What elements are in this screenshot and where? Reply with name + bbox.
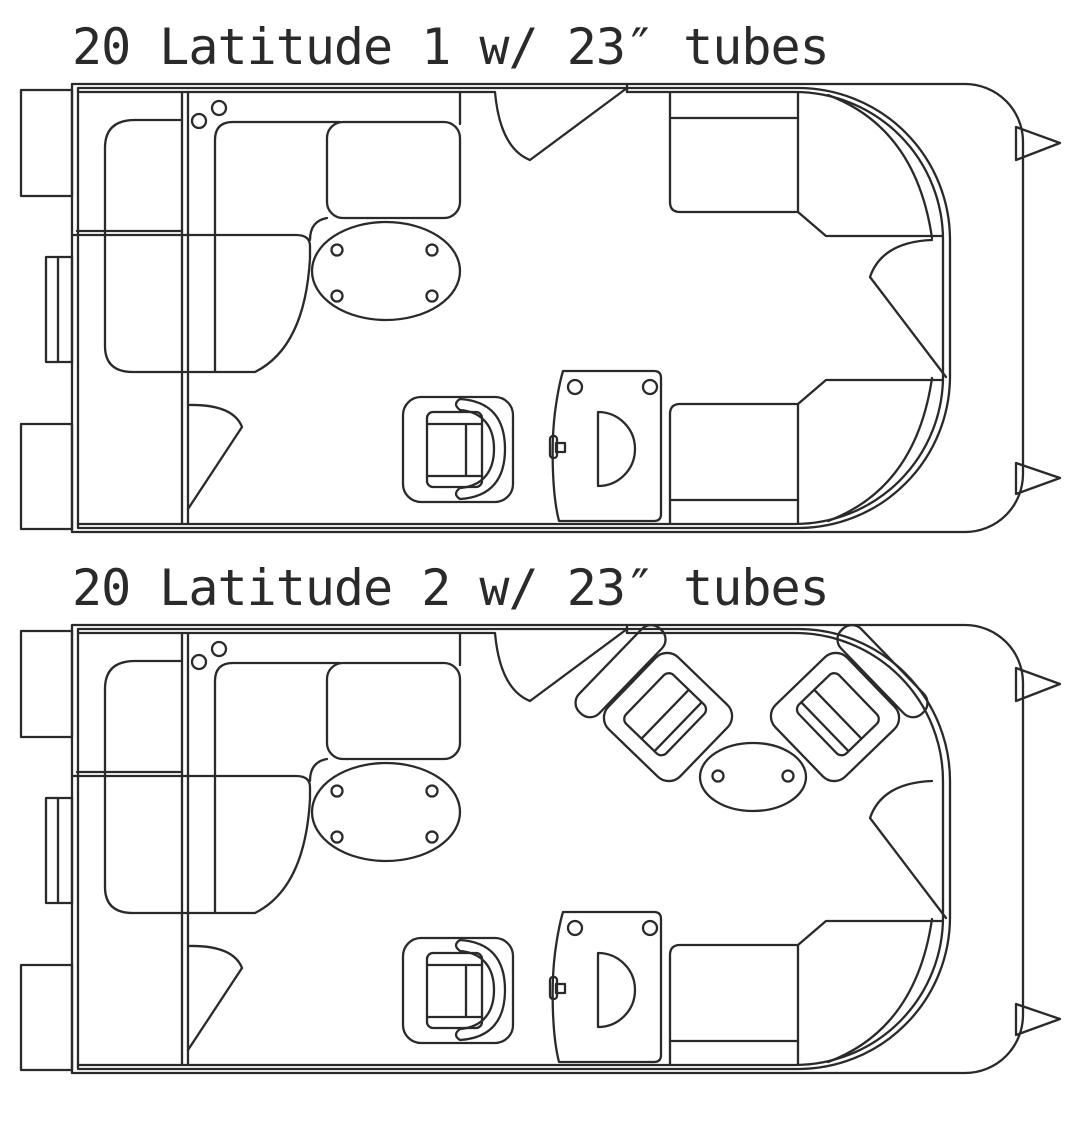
swivel-chair-port <box>570 620 744 794</box>
cup-holder <box>783 771 794 782</box>
cup-holder <box>713 771 724 782</box>
floorplan-sheet: 20 Latitude 1 w/ 23″ tubes 20 Latitude 2… <box>0 0 1080 1127</box>
floorplan-drawing <box>0 0 1080 1127</box>
boat2-common <box>21 625 1060 1073</box>
bow-chair-group <box>570 620 933 811</box>
boat1-port-bow-lounge <box>670 92 943 238</box>
swivel-chair-starboard <box>759 620 933 794</box>
boat-1 <box>21 84 1060 532</box>
cocktail-table <box>700 743 806 811</box>
boat-2 <box>21 620 1060 1073</box>
boat1-common <box>21 84 1060 532</box>
